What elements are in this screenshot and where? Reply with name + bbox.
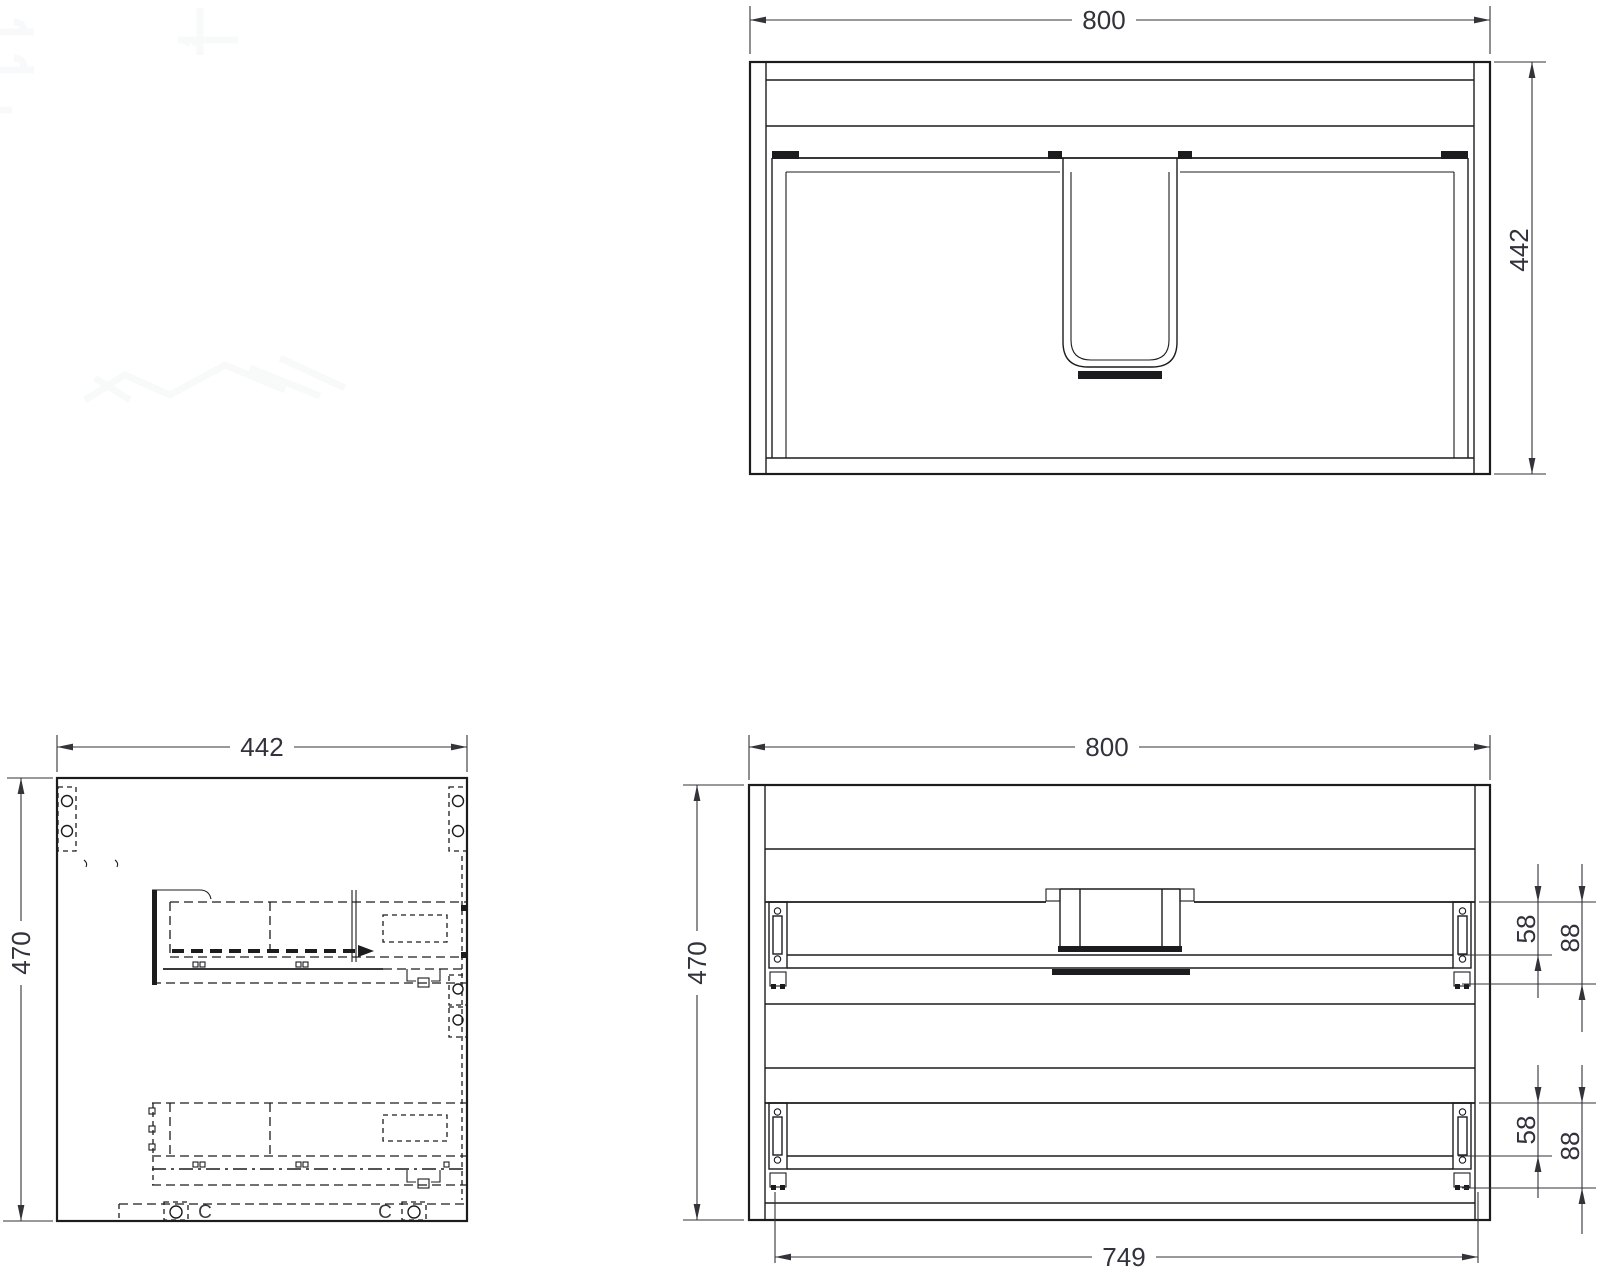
arrowhead-left xyxy=(57,744,73,751)
arrowhead-left xyxy=(749,744,765,751)
recess-flange-right xyxy=(1180,889,1194,901)
arrowhead-up xyxy=(1579,1188,1586,1204)
foot-pad xyxy=(1464,984,1469,989)
clip-tab xyxy=(1048,151,1062,159)
carcass-outline xyxy=(749,785,1490,1220)
bracket-hole xyxy=(453,984,463,994)
wall-bracket-top-left xyxy=(58,787,76,851)
runner-lug xyxy=(303,962,308,967)
runner-lug xyxy=(193,962,198,967)
dim-label-runner-span: 749 xyxy=(1102,1242,1145,1272)
arrowhead-up xyxy=(1535,1156,1542,1172)
edge-fitting xyxy=(461,952,467,958)
runner-lug xyxy=(296,1162,301,1167)
cam-label-left: C xyxy=(198,1202,212,1223)
bracket-body xyxy=(1453,1103,1471,1169)
bracket-hole xyxy=(62,796,73,807)
screw xyxy=(1459,1109,1465,1115)
bracket-hole xyxy=(62,826,73,837)
dim-side-height: 470 xyxy=(3,778,53,1221)
rear-mount-plate xyxy=(383,1115,447,1141)
bracket-box xyxy=(449,975,467,1005)
dim-label-rear-width: 800 xyxy=(1085,732,1128,762)
arrowhead-right xyxy=(1474,17,1490,24)
rear-view: 800 470 749 xyxy=(682,732,1596,1272)
drawing-page: 800 442 xyxy=(0,0,1600,1275)
arrowhead-right xyxy=(1474,744,1490,751)
dim-lower-offsets: 58 88 xyxy=(1458,1065,1596,1234)
bracket-slot xyxy=(1458,916,1467,954)
bracket-foot xyxy=(770,1173,786,1187)
arrowhead-left xyxy=(775,1254,791,1261)
foot-pad xyxy=(1455,1185,1460,1190)
arrowhead-right xyxy=(451,744,467,751)
bracket-slot xyxy=(773,1117,782,1155)
dim-label-side-height: 470 xyxy=(6,931,36,974)
clip-tab xyxy=(1441,151,1468,159)
recess-shadow-bar xyxy=(1052,969,1190,975)
arrowhead-left xyxy=(750,17,766,24)
cam-lock xyxy=(170,1206,182,1218)
ghost-artifacts xyxy=(0,8,345,400)
side-panel-outline xyxy=(57,778,467,1221)
countertop-outline xyxy=(750,62,1490,474)
drawer-back-lower xyxy=(765,1103,1475,1190)
sink-plumbing-cutout xyxy=(1063,158,1177,379)
cutout-inner-wall xyxy=(1071,172,1169,360)
adjuster-block xyxy=(418,1179,429,1188)
runner-bracket-left xyxy=(769,1103,787,1190)
screw xyxy=(774,1109,780,1115)
bracket-hole xyxy=(453,826,464,837)
bracket-box xyxy=(58,787,76,851)
dim-label-rear-height: 470 xyxy=(682,941,712,984)
dim-label-upper-bracket-offset: 88 xyxy=(1555,924,1585,953)
dim-upper-offsets: 58 88 xyxy=(1458,864,1596,1032)
top-view-outline xyxy=(750,62,1490,474)
screw xyxy=(1459,1157,1465,1163)
reference-ticks xyxy=(84,860,118,867)
recess-flange-left xyxy=(1046,889,1060,901)
foot-pad xyxy=(771,1185,776,1190)
runner-lug xyxy=(200,1162,205,1167)
runner-lug xyxy=(193,1162,198,1167)
runner-lug xyxy=(296,962,301,967)
screw xyxy=(1459,908,1465,914)
arrowhead-up xyxy=(694,785,701,801)
dim-side-depth: 442 xyxy=(57,732,467,772)
arrowhead-down xyxy=(1535,1087,1542,1103)
arrowhead-down xyxy=(1579,1087,1586,1103)
runner-lug xyxy=(200,962,205,967)
foot-pad xyxy=(1455,984,1460,989)
cutout-bottom-bar xyxy=(1078,371,1162,379)
bracket-hole xyxy=(453,796,464,807)
screw xyxy=(1459,956,1465,962)
cam-label-right: C xyxy=(378,1202,392,1223)
slide-lug xyxy=(149,1108,155,1114)
bracket-body xyxy=(1453,902,1471,968)
clip-tab xyxy=(1178,151,1192,159)
bottom-fixing-strip: C C xyxy=(119,1202,467,1223)
bracket-body xyxy=(769,1103,787,1169)
rear-mount-plate xyxy=(383,915,447,942)
arrowhead-down xyxy=(694,1204,701,1220)
runner-lug xyxy=(303,1162,308,1167)
arrowhead-down xyxy=(1529,458,1536,474)
recess-bottom xyxy=(1058,946,1182,952)
drawer-slide-lower xyxy=(149,1103,467,1188)
arrowhead-up xyxy=(1579,984,1586,1000)
screw xyxy=(774,956,780,962)
bracket-body xyxy=(769,902,787,968)
top-view: 800 442 xyxy=(750,5,1546,474)
drawer-back-upper xyxy=(765,889,1475,989)
adjuster-bracket xyxy=(407,969,440,981)
arrowhead-down xyxy=(1579,886,1586,902)
dim-label-top-width: 800 xyxy=(1082,5,1125,35)
cam-lock xyxy=(408,1206,420,1218)
drawer-plan xyxy=(772,151,1468,458)
screw xyxy=(774,1157,780,1163)
dim-label-lower-bracket-offset: 88 xyxy=(1555,1132,1585,1161)
side-view: C C 442 470 xyxy=(3,732,467,1223)
bracket-foot xyxy=(770,972,786,986)
dim-label-top-depth: 442 xyxy=(1504,228,1534,271)
cutout-outer-wall xyxy=(1063,158,1177,367)
adjuster-bracket xyxy=(407,1170,440,1182)
clip-tab xyxy=(772,151,799,159)
runner-bracket-right xyxy=(1453,1103,1471,1190)
bracket-foot xyxy=(1454,1173,1470,1187)
arrowhead-up xyxy=(18,778,25,794)
arrowhead-right xyxy=(1462,1254,1478,1261)
bracket-slot xyxy=(773,916,782,954)
runner-lug xyxy=(444,1162,449,1167)
foot-pad xyxy=(771,984,776,989)
bracket-box xyxy=(449,787,467,851)
slide-lug xyxy=(149,1144,155,1150)
dim-rear-height: 470 xyxy=(682,785,744,1220)
drain-recess xyxy=(1046,889,1194,975)
dim-label-upper-rail-offset: 58 xyxy=(1511,915,1541,944)
runner-bracket-right xyxy=(1453,902,1471,989)
dim-label-lower-rail-offset: 58 xyxy=(1511,1116,1541,1145)
foot-pad xyxy=(780,984,785,989)
edge-fitting xyxy=(461,905,467,911)
arrowhead-up xyxy=(1529,62,1536,78)
dim-rear-width: 800 xyxy=(749,732,1490,780)
screw xyxy=(774,908,780,914)
arrowhead-down xyxy=(18,1205,25,1221)
dim-label-side-depth: 442 xyxy=(240,732,283,762)
foot-pad xyxy=(780,1185,785,1190)
slide-rail-end xyxy=(358,945,374,957)
wall-bracket-top-right xyxy=(449,787,467,851)
bracket-slot xyxy=(1458,1117,1467,1155)
slide-front-bracket xyxy=(152,890,157,985)
wall-bracket-middle-right xyxy=(449,975,467,1037)
slide-lug xyxy=(149,1126,155,1132)
dim-top-width: 800 xyxy=(750,5,1490,54)
arrowhead-up xyxy=(1535,955,1542,971)
dim-top-depth: 442 xyxy=(1494,62,1546,474)
runner-bracket-left xyxy=(769,902,787,989)
dim-runner-span: 749 xyxy=(775,1192,1478,1272)
drawer-slide-upper xyxy=(152,890,467,987)
bracket-box xyxy=(449,1007,467,1037)
slide-front-top xyxy=(152,890,211,899)
arrowhead-down xyxy=(1535,886,1542,902)
technical-drawing-canvas: 800 442 xyxy=(0,0,1600,1275)
